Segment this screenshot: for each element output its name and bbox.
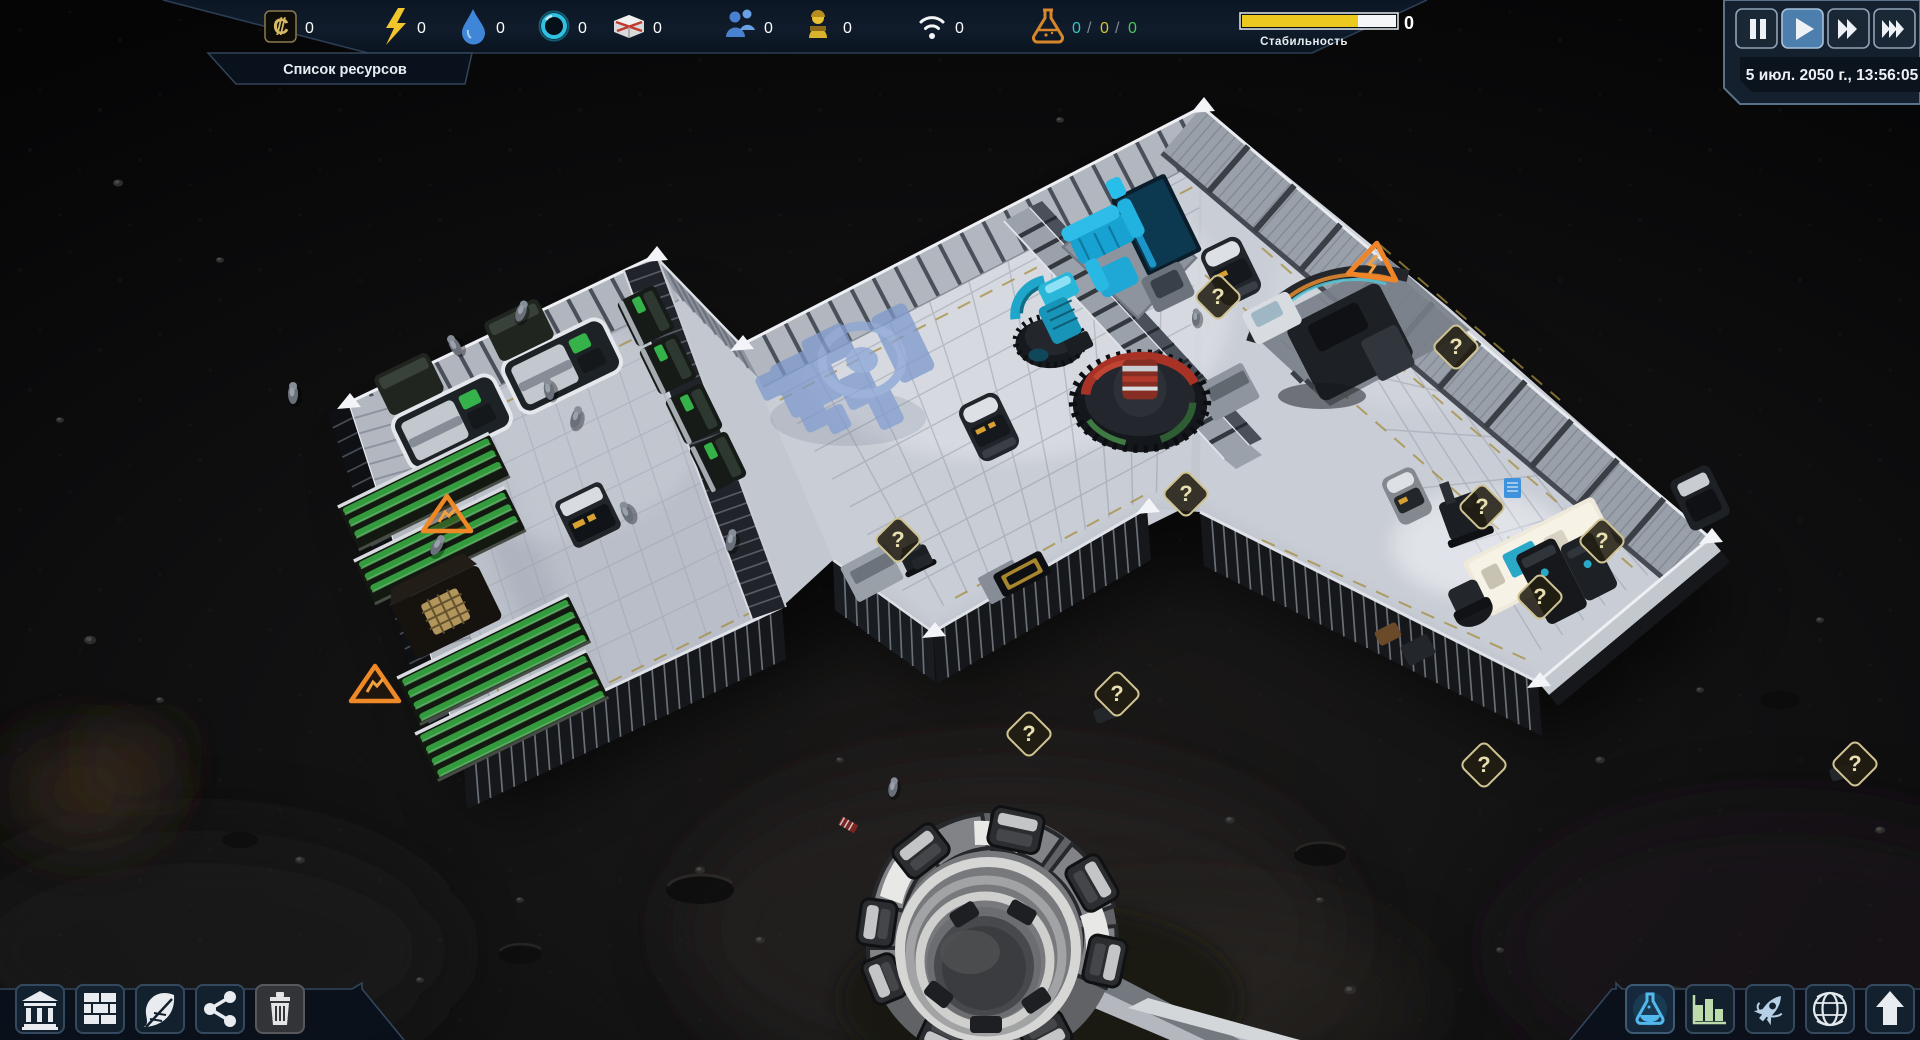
svg-text:0: 0 [417,20,426,37]
svg-text:0: 0 [955,20,964,37]
svg-text:?: ? [1449,334,1462,359]
svg-text:?: ? [1022,721,1035,746]
svg-text:?: ? [891,527,904,552]
svg-text:0: 0 [653,20,662,37]
svg-text:?: ? [1533,584,1546,609]
svg-text:0: 0 [1404,13,1414,33]
svg-text:?: ? [1211,284,1224,309]
svg-text:0: 0 [496,20,505,37]
svg-text:Список ресурсов: Список ресурсов [283,62,407,78]
svg-text:?: ? [1595,528,1608,553]
svg-text:0: 0 [843,20,852,37]
svg-text:/: / [1115,20,1120,37]
svg-text:0: 0 [578,20,587,37]
svg-text:5 июл. 2050 г., 13:56:05: 5 июл. 2050 г., 13:56:05 [1746,67,1919,84]
svg-text:?: ? [1477,752,1490,777]
svg-text:/: / [1087,20,1092,37]
svg-text:0: 0 [305,20,314,37]
svg-text:?: ? [1848,751,1861,776]
svg-text:?: ? [1179,481,1192,506]
svg-text:₡: ₡ [273,14,289,39]
svg-text:0: 0 [1128,20,1137,37]
svg-text:0: 0 [1100,20,1109,37]
svg-text:0: 0 [1072,20,1081,37]
svg-text:Стабильность: Стабильность [1260,36,1348,48]
svg-text:?: ? [1475,494,1488,519]
svg-text:?: ? [1110,681,1123,706]
svg-text:0: 0 [764,20,773,37]
